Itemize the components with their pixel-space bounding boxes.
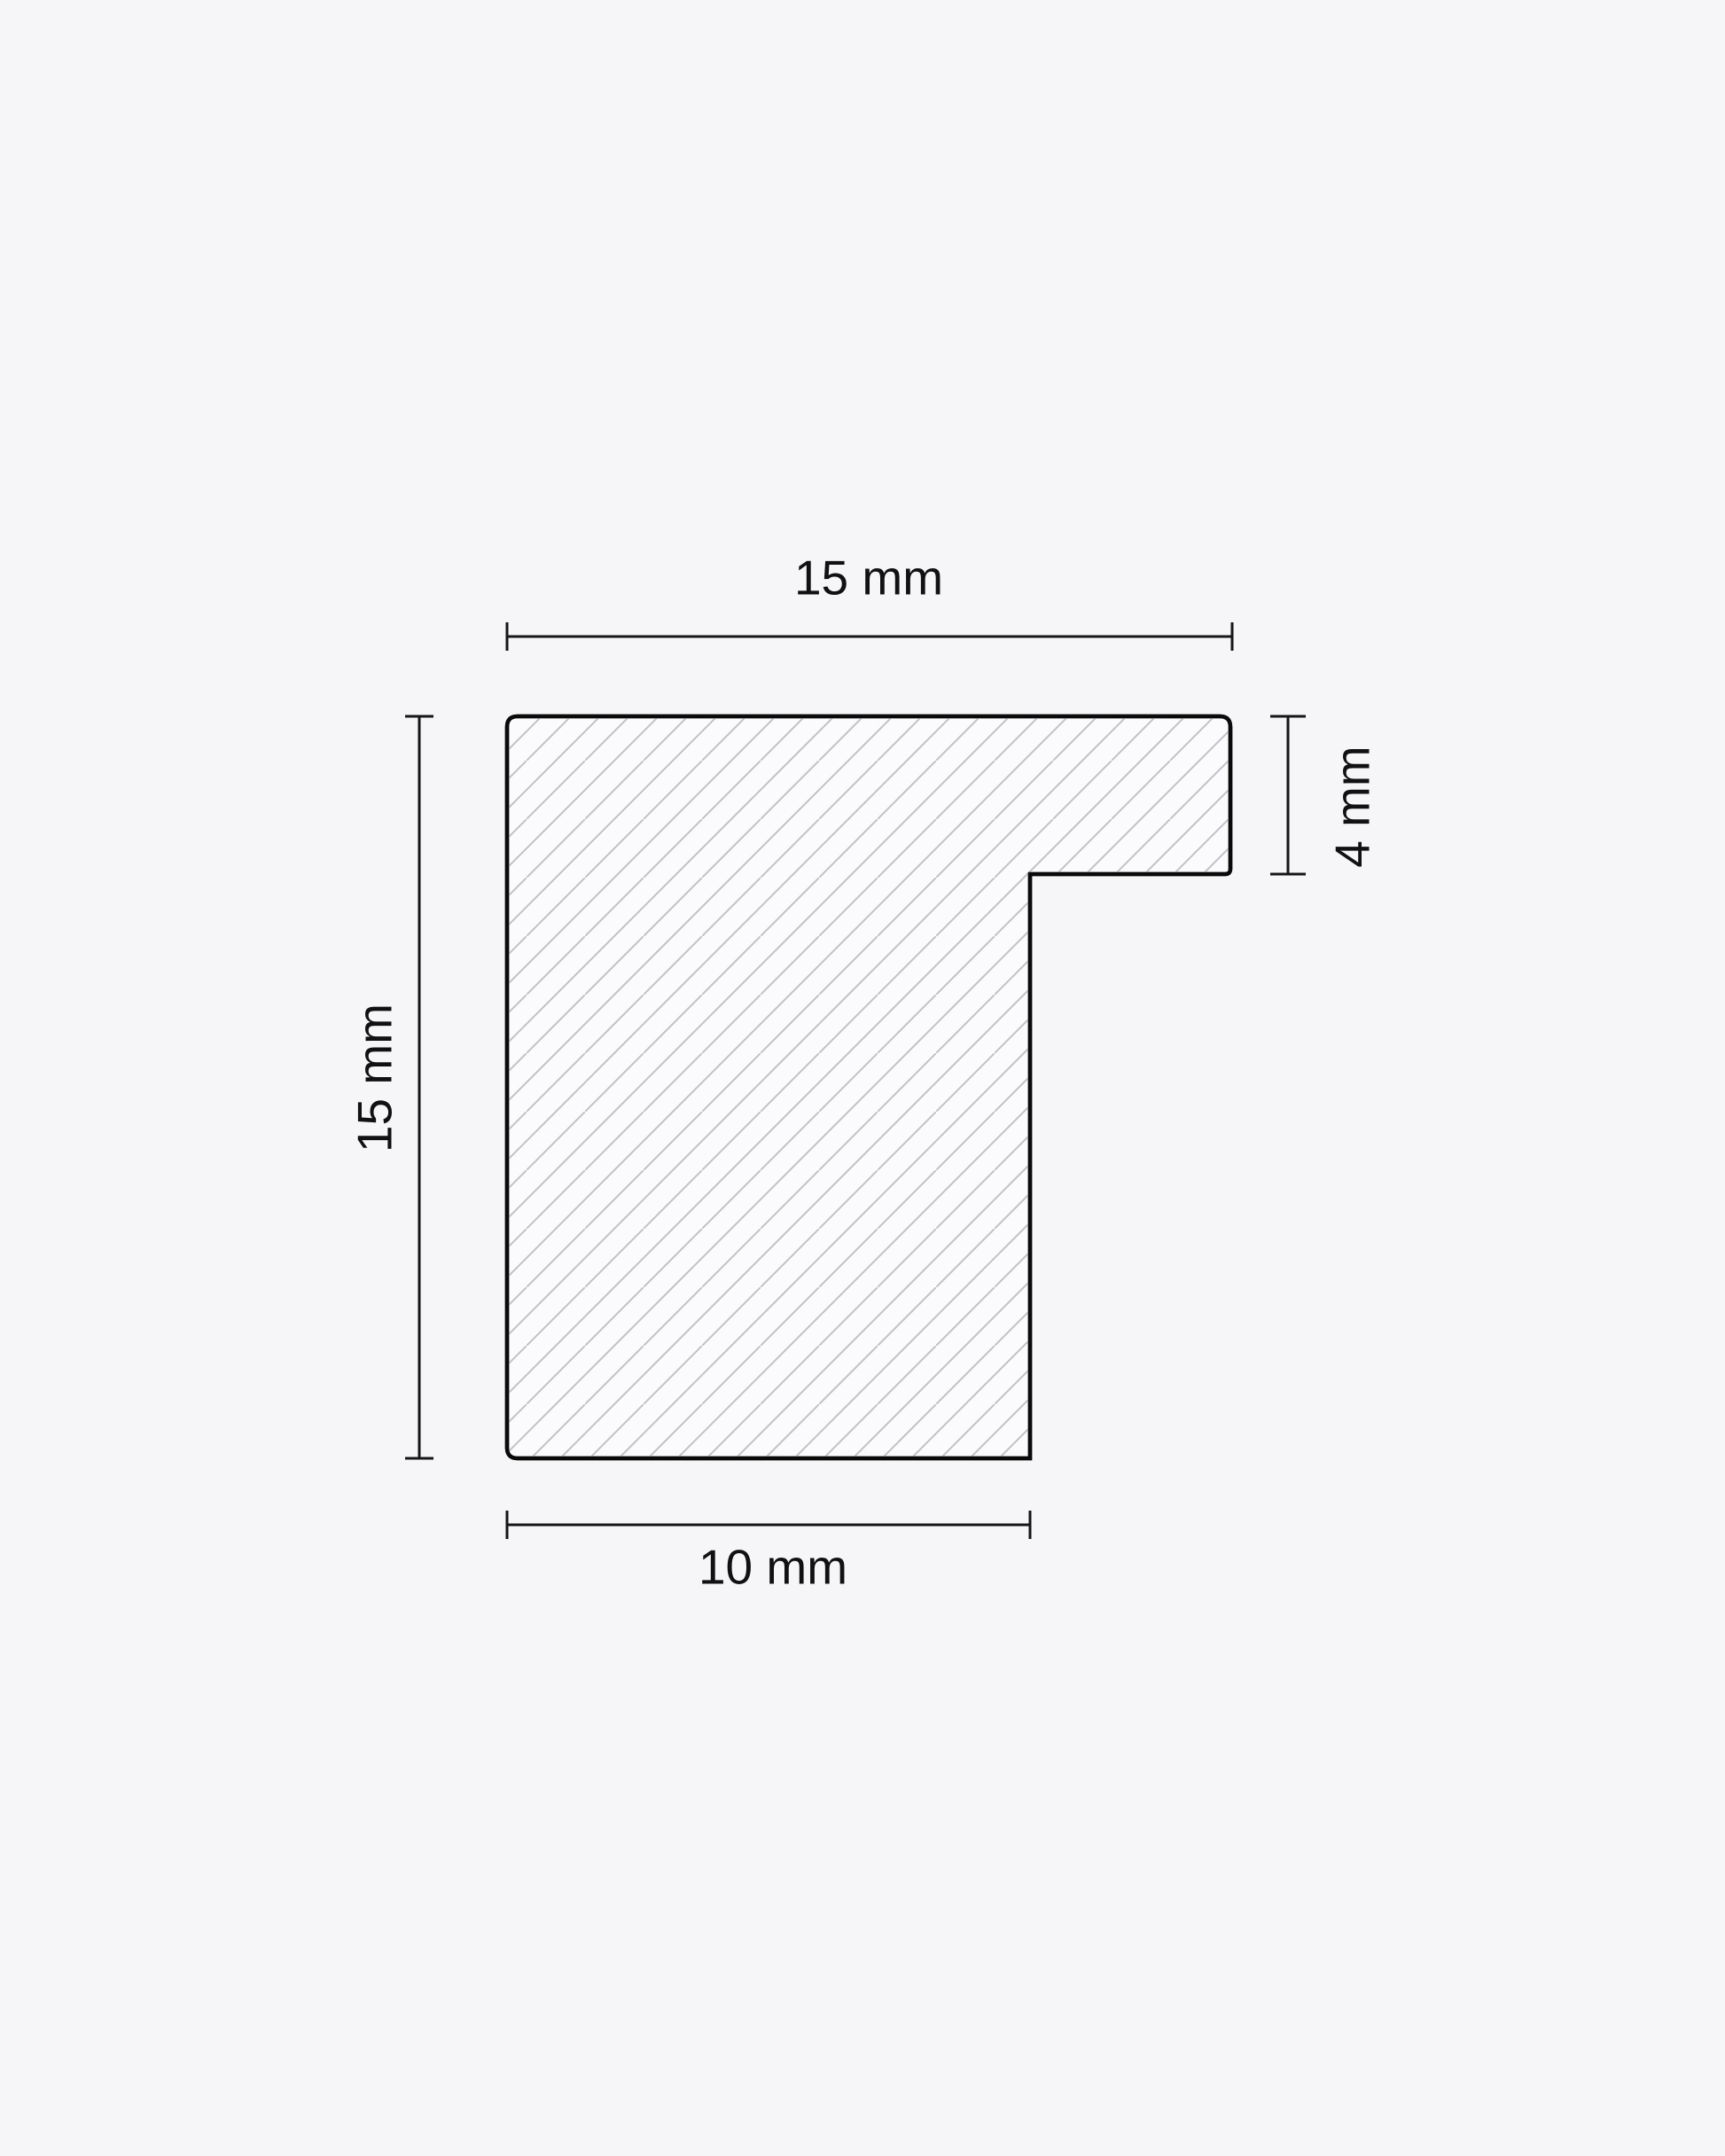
dim-label-top-width: 15 mm (794, 554, 943, 603)
hatch-fill (496, 706, 1241, 1470)
dim-label-left-height: 15 mm (351, 1004, 400, 1152)
dim-line-right (1270, 716, 1306, 874)
dim-line-bottom (507, 1511, 1030, 1539)
dim-line-left (405, 716, 433, 1458)
profile-drawing (0, 0, 1725, 2156)
dim-line-top (507, 622, 1232, 651)
dim-label-right-rabbet-depth: 4 mm (1329, 746, 1378, 868)
moulding-profile-shape (496, 706, 1241, 1470)
dim-label-bottom-base-width: 10 mm (699, 1543, 847, 1592)
profile-diagram-canvas: 15 mm 15 mm 4 mm 10 mm (0, 0, 1725, 2156)
